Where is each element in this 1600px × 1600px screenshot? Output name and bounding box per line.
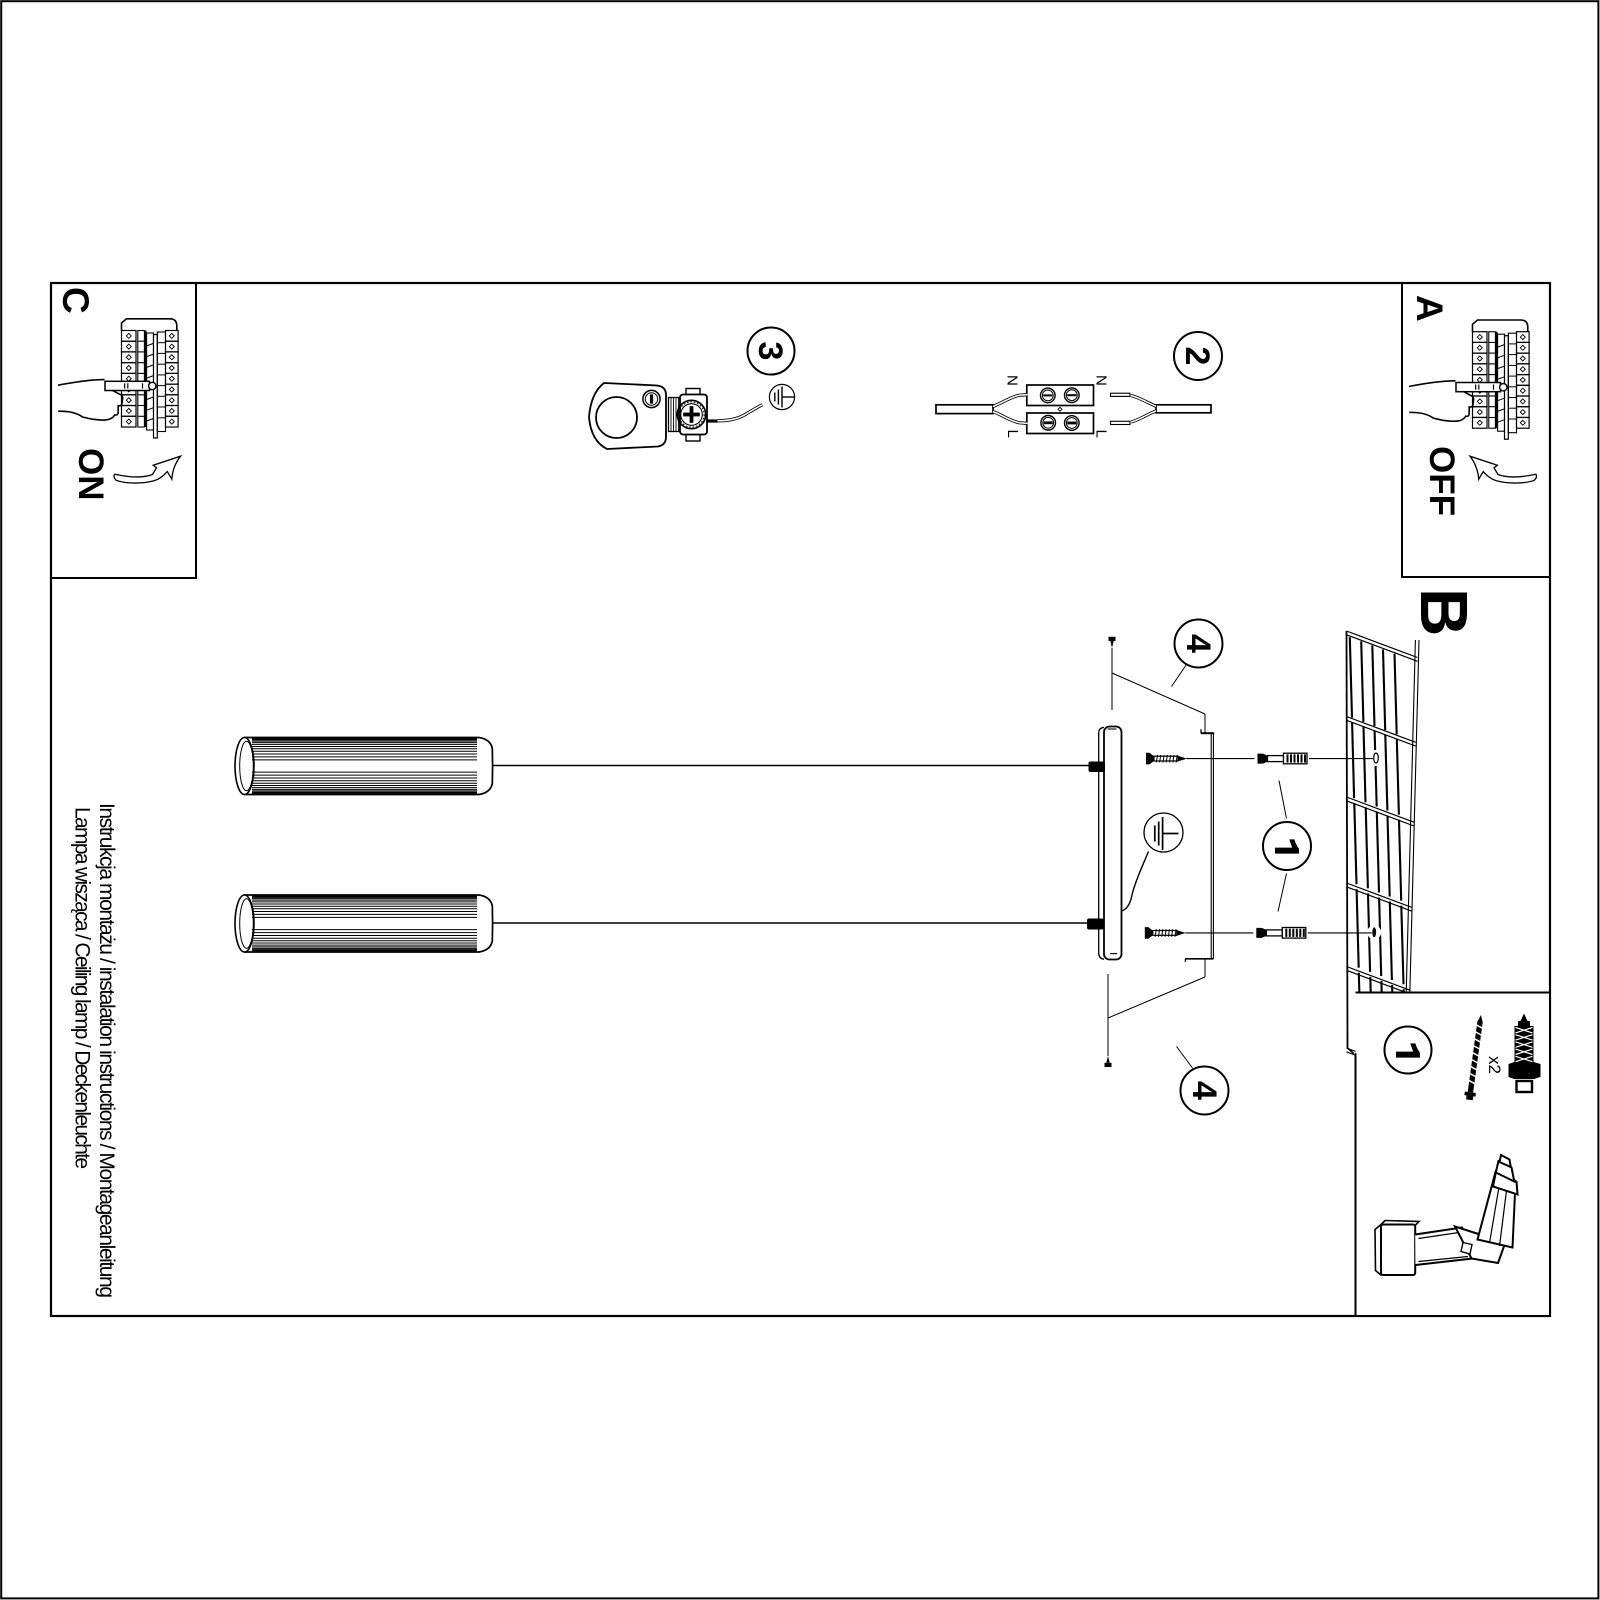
svg-text:3: 3 (751, 342, 789, 361)
svg-text:L: L (1004, 430, 1021, 438)
svg-text:Lampa wisząca / Ceiling lamp /: Lampa wisząca / Ceiling lamp / Deckenleu… (71, 807, 94, 1169)
svg-text:N: N (1004, 375, 1021, 386)
svg-text:N: N (1093, 375, 1110, 386)
svg-text:C: C (55, 287, 96, 314)
svg-text:2: 2 (1178, 347, 1216, 366)
svg-text:Instrukcja montażu / instalati: Instrukcja montażu / instalation instruc… (95, 803, 118, 1298)
svg-text:L: L (1093, 430, 1110, 438)
svg-text:B: B (1406, 588, 1481, 636)
svg-text:ON: ON (71, 448, 110, 501)
svg-text:4: 4 (1179, 634, 1217, 653)
svg-text:4: 4 (1185, 1081, 1223, 1100)
svg-text:A: A (1409, 295, 1450, 322)
svg-text:OFF: OFF (1422, 446, 1461, 516)
svg-text:x2: x2 (1485, 1056, 1504, 1074)
